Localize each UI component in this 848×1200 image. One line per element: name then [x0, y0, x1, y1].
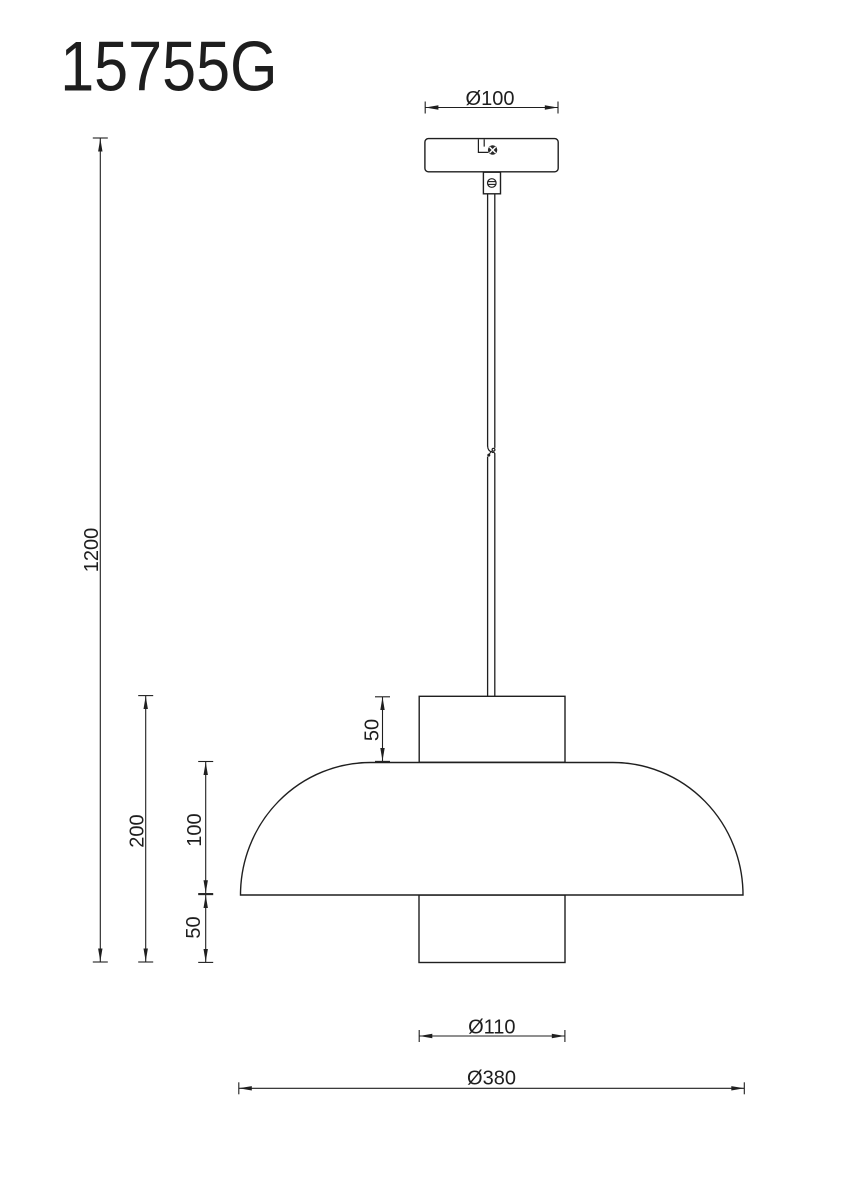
svg-text:50: 50	[183, 916, 205, 938]
svg-text:Ø110: Ø110	[468, 1017, 515, 1039]
svg-text:Ø380: Ø380	[467, 1068, 516, 1090]
svg-text:15755G: 15755G	[60, 27, 277, 106]
svg-text:100: 100	[184, 813, 206, 846]
svg-text:50: 50	[362, 719, 384, 741]
svg-text:Ø100: Ø100	[466, 88, 515, 110]
svg-text:1200: 1200	[81, 528, 103, 573]
svg-text:200: 200	[127, 814, 149, 847]
